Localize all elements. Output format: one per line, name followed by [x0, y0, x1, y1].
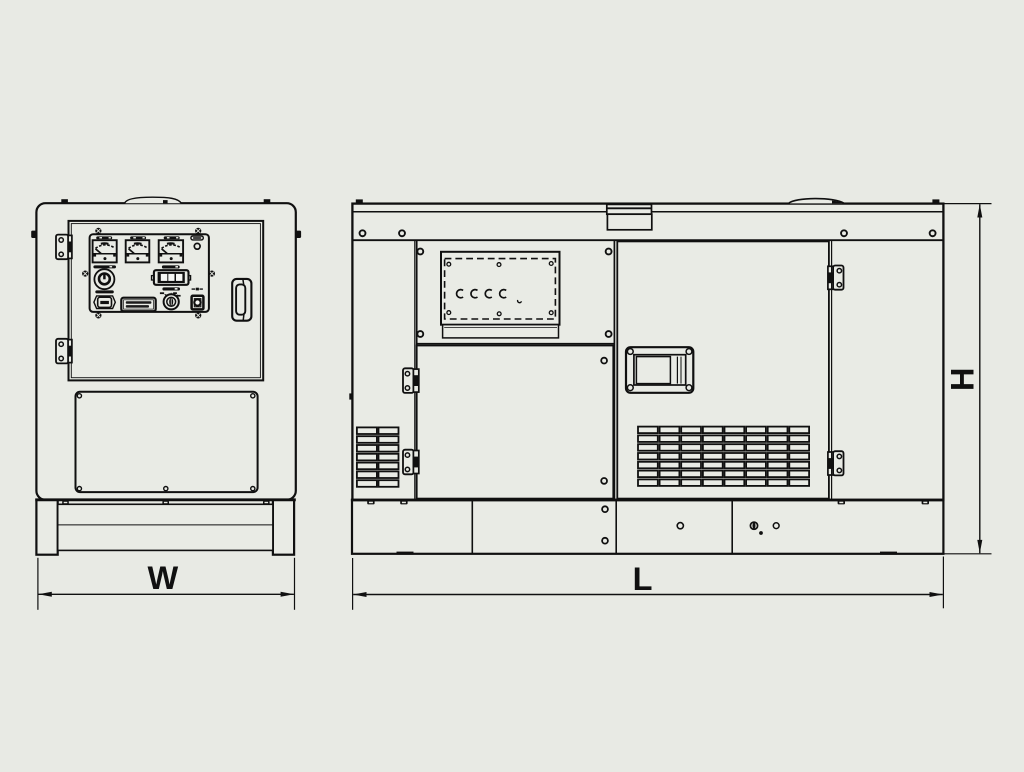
svg-text:H: H	[944, 367, 980, 390]
svg-text:W: W	[148, 560, 179, 596]
svg-text:L: L	[633, 561, 653, 597]
